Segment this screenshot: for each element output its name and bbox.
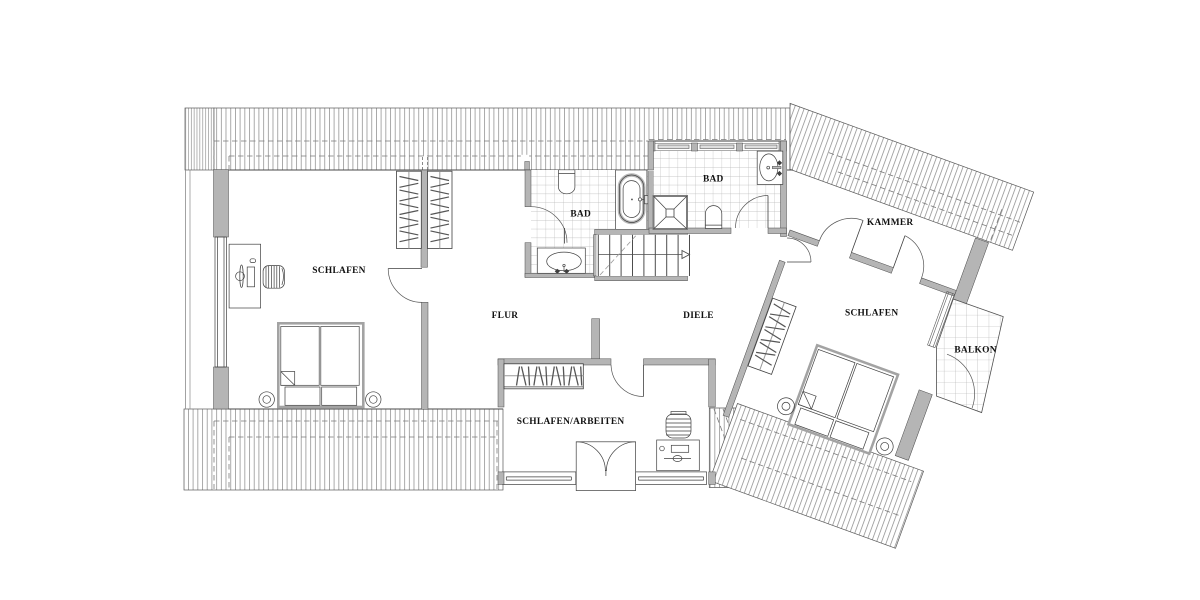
- svg-text:FLUR: FLUR: [492, 311, 519, 321]
- svg-text:BALKON: BALKON: [954, 345, 996, 355]
- svg-text:DIELE: DIELE: [683, 311, 714, 321]
- svg-text:SCHLAFEN: SCHLAFEN: [312, 266, 365, 276]
- svg-text:SCHLAFEN: SCHLAFEN: [845, 308, 898, 318]
- svg-text:BAD: BAD: [570, 210, 591, 220]
- svg-text:SCHLAFEN/ARBEITEN: SCHLAFEN/ARBEITEN: [517, 417, 625, 427]
- svg-text:KAMMER: KAMMER: [867, 218, 914, 228]
- svg-text:BAD: BAD: [703, 174, 724, 184]
